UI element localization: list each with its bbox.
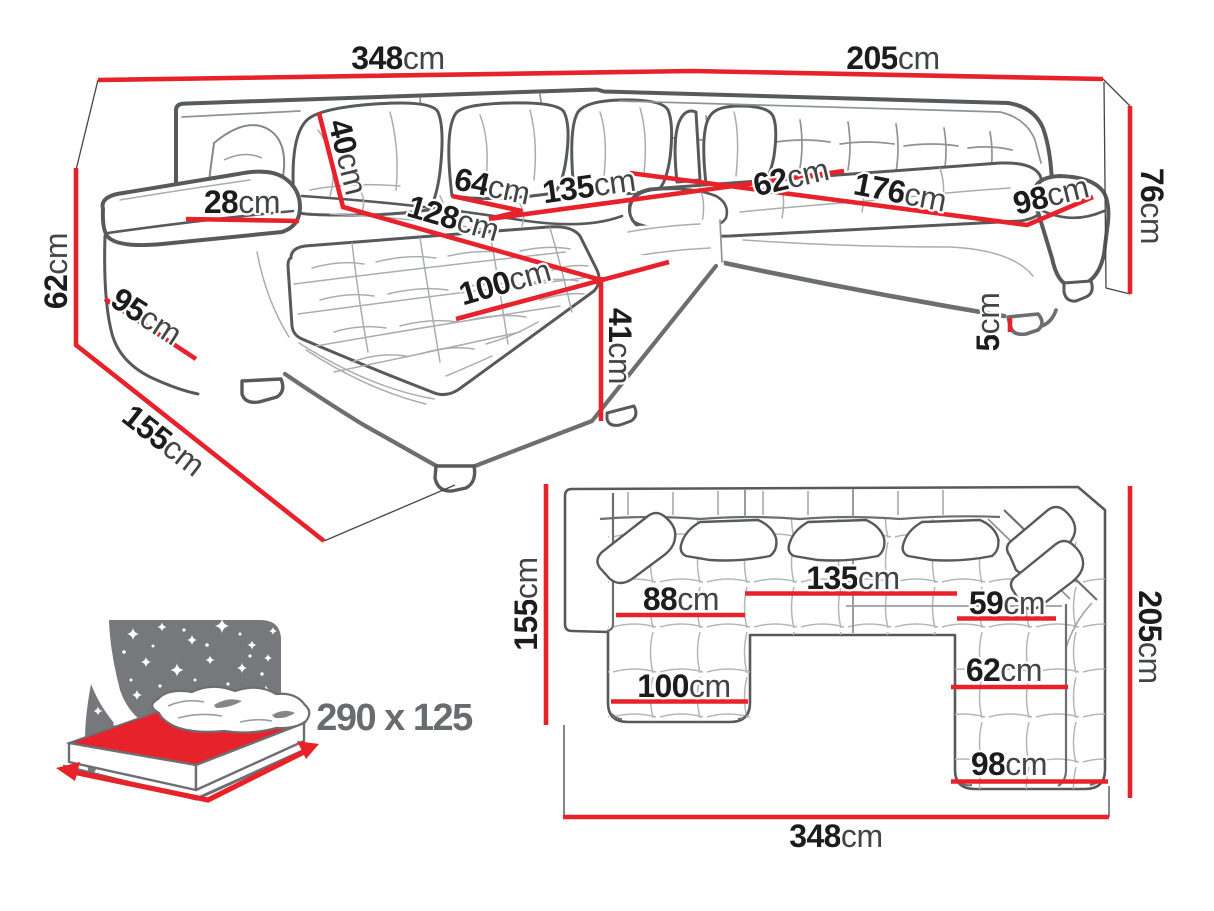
- svg-text:76cm: 76cm: [1134, 168, 1170, 244]
- svg-text:100cm: 100cm: [637, 668, 730, 704]
- svg-text:5cm: 5cm: [970, 292, 1006, 351]
- svg-text:135cm: 135cm: [806, 560, 899, 596]
- svg-text:98cm: 98cm: [971, 746, 1047, 782]
- svg-text:205cm: 205cm: [846, 40, 939, 76]
- svg-text:290 x 125: 290 x 125: [316, 697, 473, 739]
- svg-text:348cm: 348cm: [789, 818, 882, 854]
- svg-text:59cm: 59cm: [969, 585, 1045, 621]
- svg-text:62cm: 62cm: [966, 652, 1042, 688]
- svg-text:41cm: 41cm: [602, 308, 638, 384]
- svg-text:62cm: 62cm: [38, 233, 74, 309]
- svg-text:28cm: 28cm: [204, 184, 280, 220]
- svg-text:205cm: 205cm: [1132, 590, 1168, 683]
- svg-text:348cm: 348cm: [351, 40, 444, 76]
- svg-text:155cm: 155cm: [508, 557, 544, 650]
- svg-text:88cm: 88cm: [643, 581, 719, 617]
